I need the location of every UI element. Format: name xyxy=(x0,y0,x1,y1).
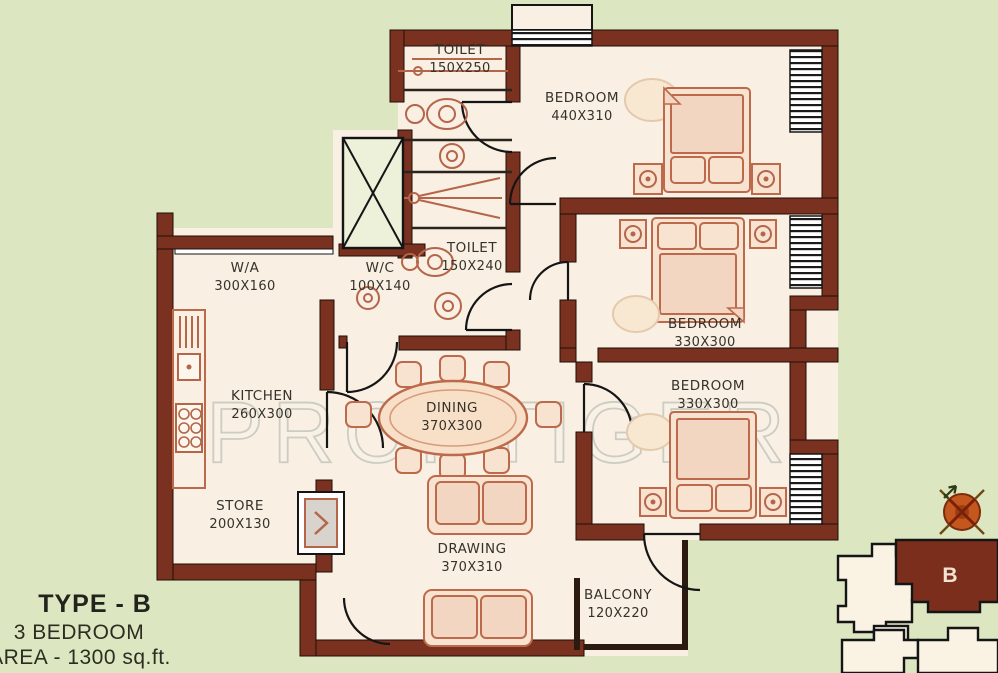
floor-plan-canvas: PROPTIGER xyxy=(0,0,998,673)
keymap-unit-label: B xyxy=(942,564,957,587)
label-toilet-common: TOILET xyxy=(446,240,497,256)
label-bedroom-master: BEDROOM xyxy=(545,90,619,106)
dims-bedroom-lower: 330X300 xyxy=(677,397,738,412)
type-label: TYPE - B xyxy=(38,590,152,618)
dims-wa: 300X160 xyxy=(214,279,275,294)
dims-toilet-common: 150X240 xyxy=(441,259,502,274)
duct-box xyxy=(512,5,592,30)
label-dining: DINING xyxy=(426,400,478,416)
label-toilet-ensuite: TOILET xyxy=(434,42,485,58)
label-wa: W/A xyxy=(231,260,260,276)
dims-kitchen: 260X300 xyxy=(231,407,292,422)
dims-bedroom-mid: 330X300 xyxy=(674,335,735,350)
area-label: AREA - 1300 sq.ft. xyxy=(0,646,171,669)
floor-plan-page: PROPTIGER xyxy=(0,0,998,673)
label-wc: W/C xyxy=(366,260,395,276)
kitchen-counter xyxy=(173,310,205,488)
site-keymap: B xyxy=(838,540,998,673)
wa-window xyxy=(175,249,333,254)
label-store: STORE xyxy=(216,498,264,514)
label-kitchen: KITCHEN xyxy=(231,388,293,404)
title-block: TYPE - B 3 BEDROOM AREA - 1300 sq.ft. xyxy=(0,590,171,669)
dims-bedroom-master: 440X310 xyxy=(551,109,612,124)
label-bedroom-lower: BEDROOM xyxy=(671,378,745,394)
dims-dining: 370X300 xyxy=(421,419,482,434)
shaft-box xyxy=(343,138,403,248)
entrance-door-icon xyxy=(298,492,344,554)
compass-icon xyxy=(940,486,984,534)
label-balcony: BALCONY xyxy=(584,587,652,603)
dims-store: 200X130 xyxy=(209,517,270,532)
bedroom-count-label: 3 BEDROOM xyxy=(14,621,145,644)
dims-wc: 100X140 xyxy=(349,279,410,294)
label-drawing: DRAWING xyxy=(437,541,506,557)
label-bedroom-mid: BEDROOM xyxy=(668,316,742,332)
dims-toilet-ensuite: 150X250 xyxy=(429,61,490,76)
dims-balcony: 120X220 xyxy=(587,606,648,621)
dims-drawing: 370X310 xyxy=(441,560,502,575)
